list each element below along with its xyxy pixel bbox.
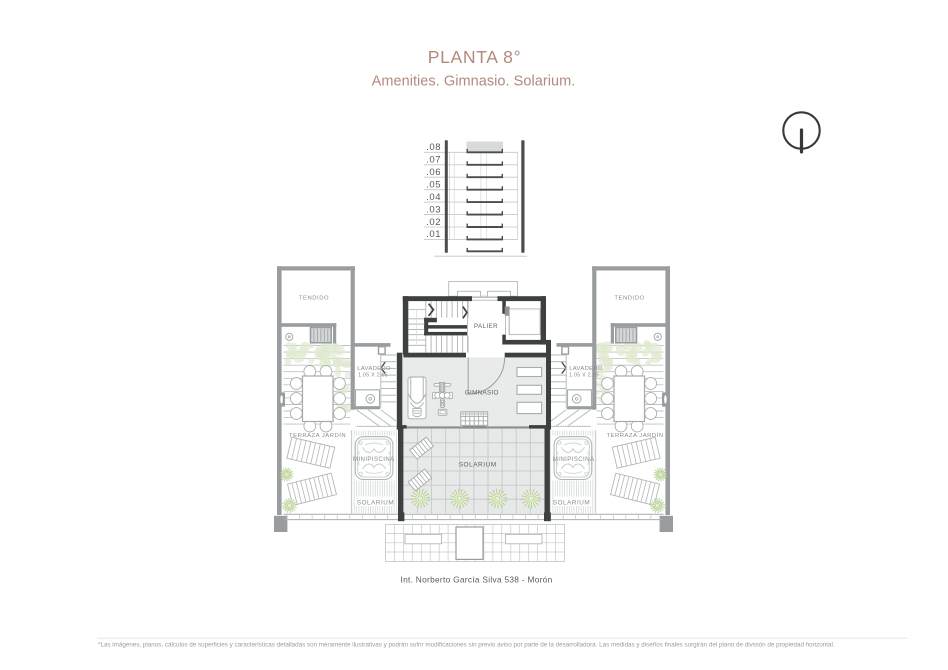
svg-text:TENDIDO: TENDIDO: [299, 295, 329, 301]
svg-text:PALIER: PALIER: [474, 323, 498, 330]
svg-text:TERRAZA JARDÍN: TERRAZA JARDÍN: [606, 432, 663, 439]
svg-text:.06: .06: [426, 167, 441, 178]
svg-text:1.05 X 2.65: 1.05 X 2.65: [358, 373, 388, 379]
svg-text:TERRAZA JARDÍN: TERRAZA JARDÍN: [289, 432, 346, 439]
svg-text:.01: .01: [426, 229, 441, 240]
svg-text:.07: .07: [426, 155, 441, 166]
svg-text:GIMNASIO: GIMNASIO: [465, 390, 499, 397]
svg-text:*Las imágenes, planos, cálculo: *Las imágenes, planos, cálculos de super…: [98, 642, 835, 649]
svg-text:.02: .02: [426, 217, 441, 228]
svg-text:LAVADERO: LAVADERO: [569, 366, 603, 372]
svg-text:.04: .04: [426, 192, 441, 203]
svg-text:TENDIDO: TENDIDO: [614, 295, 644, 301]
svg-text:1.05 X 2.65: 1.05 X 2.65: [569, 373, 599, 379]
svg-text:PLANTA 8°: PLANTA 8°: [428, 47, 521, 67]
svg-text:Int. Norberto García Silva 538: Int. Norberto García Silva 538 - Morón: [400, 575, 552, 585]
svg-text:SOLARIUM: SOLARIUM: [553, 500, 590, 507]
svg-text:SOLARIUM: SOLARIUM: [459, 461, 497, 468]
svg-text:Amenities. Gimnasio. Solarium.: Amenities. Gimnasio. Solarium.: [372, 74, 576, 90]
svg-text:.05: .05: [426, 180, 441, 191]
svg-text:.08: .08: [426, 142, 441, 153]
svg-text:SOLARIUM: SOLARIUM: [357, 500, 394, 507]
svg-text:MINIPISCINA: MINIPISCINA: [553, 456, 595, 463]
svg-text:LAVADERO: LAVADERO: [357, 366, 391, 372]
svg-text:.03: .03: [426, 204, 441, 215]
svg-text:MINIPISCINA: MINIPISCINA: [353, 456, 395, 463]
